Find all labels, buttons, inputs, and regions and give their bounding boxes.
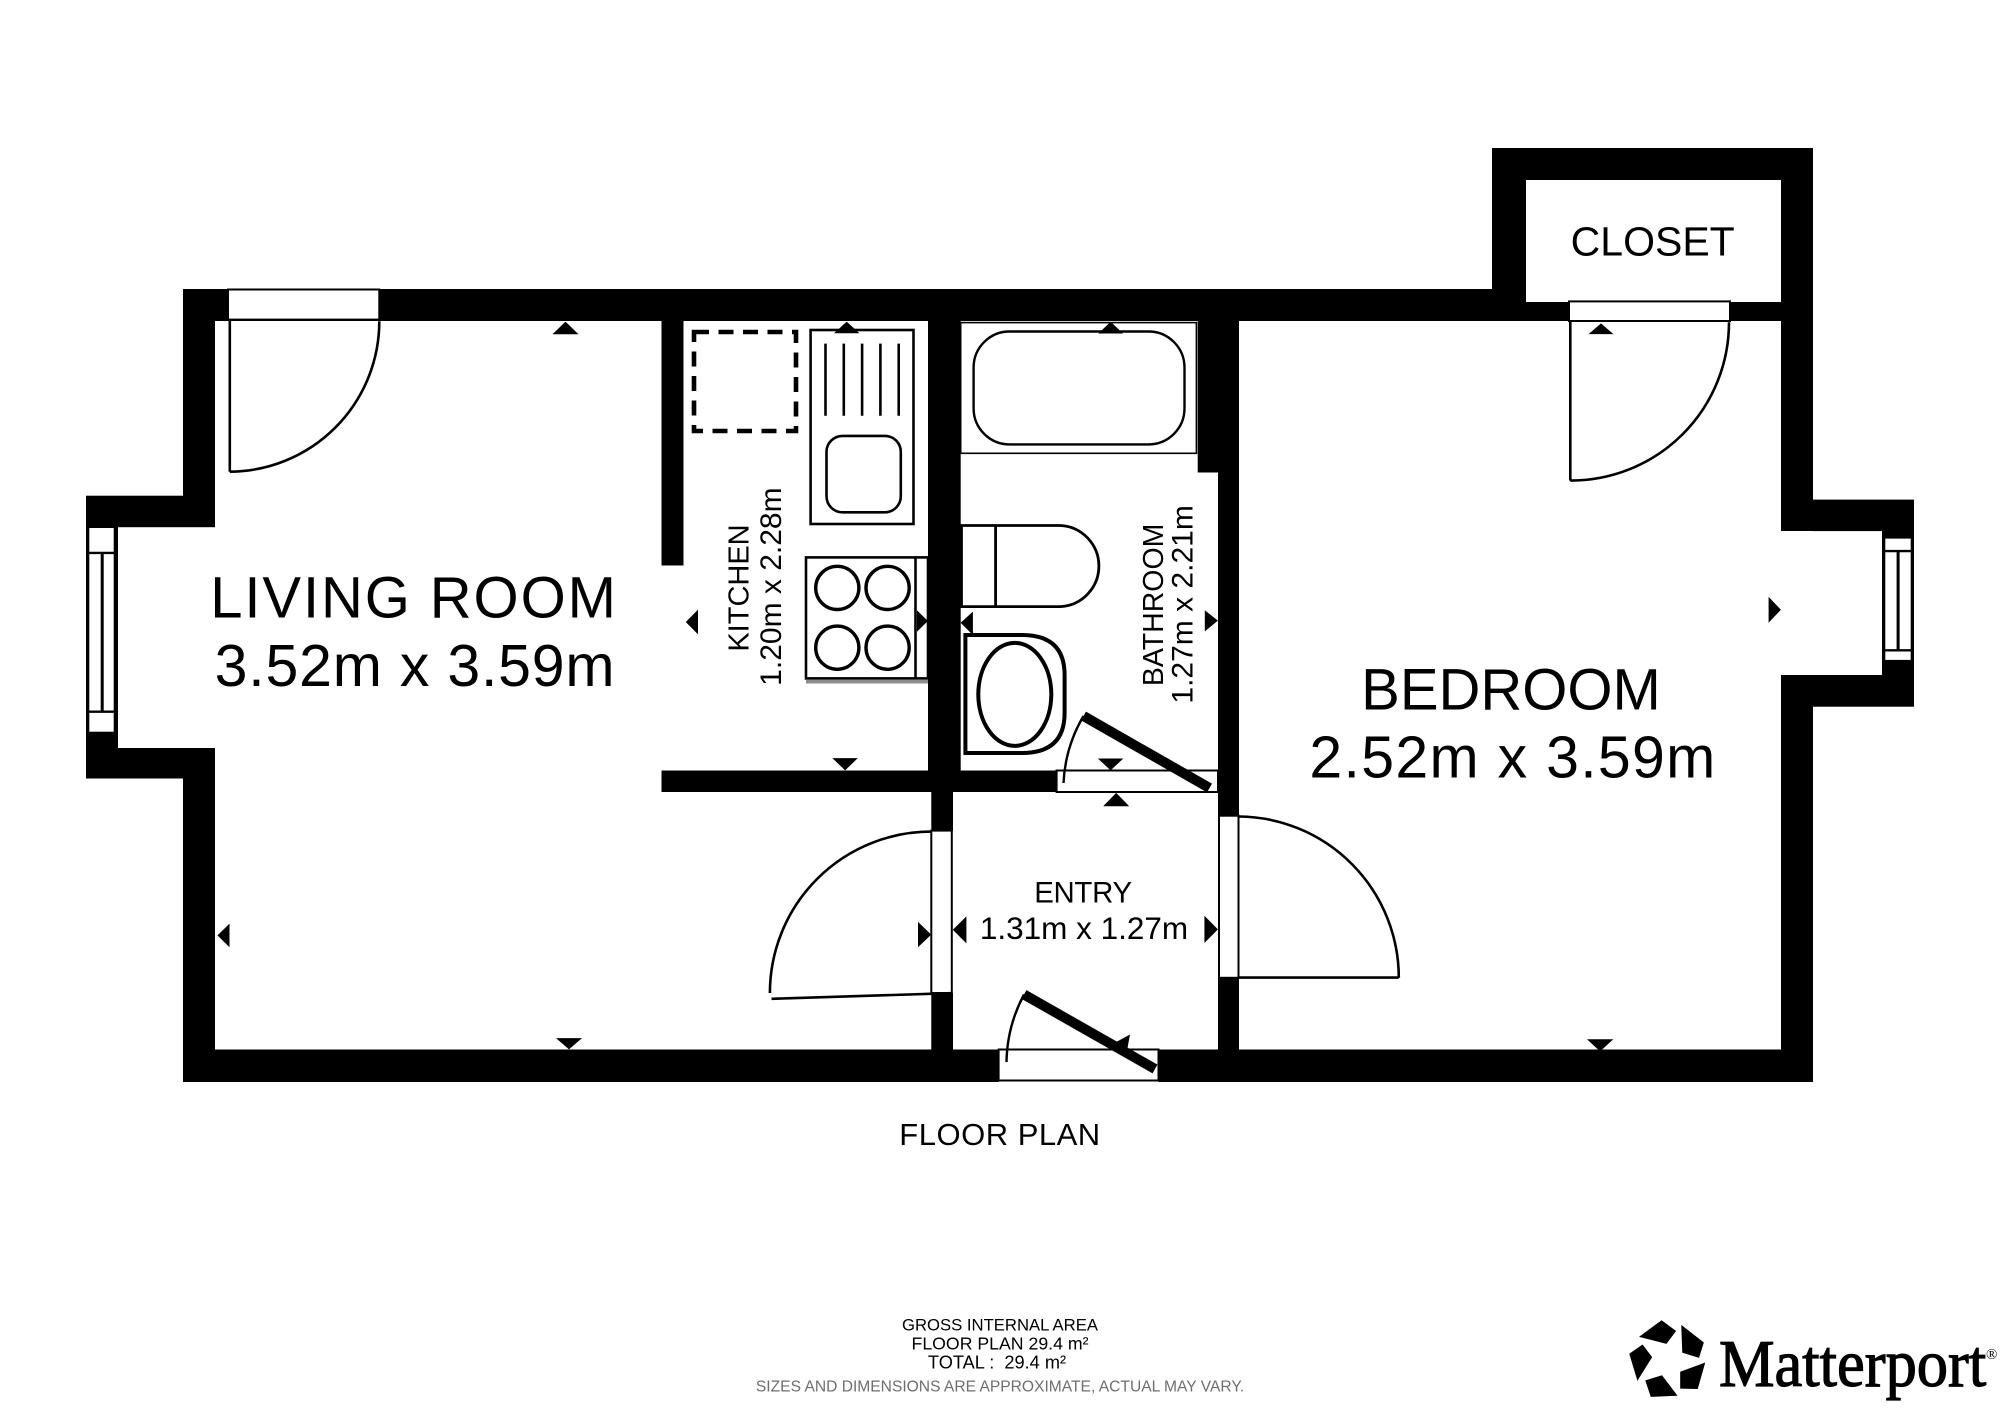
svg-text:FLOOR PLAN: FLOOR PLAN [899,1117,1100,1152]
svg-text:1.31m x 1.27m: 1.31m x 1.27m [980,910,1188,946]
svg-text:CLOSET: CLOSET [1571,218,1735,264]
svg-text:3.52m x 3.59m: 3.52m x 3.59m [215,633,616,699]
svg-text:Matterport: Matterport [1719,1327,1986,1400]
svg-text:FLOOR PLAN 29.4 m²: FLOOR PLAN 29.4 m² [912,1334,1089,1354]
svg-text:BATHROOM: BATHROOM [1138,524,1170,687]
svg-text:BEDROOM: BEDROOM [1361,658,1661,723]
svg-text:1.27m x 2.21m: 1.27m x 2.21m [1167,505,1200,703]
svg-text:1.20m x 2.28m: 1.20m x 2.28m [755,487,788,685]
svg-text:2.52m x 3.59m: 2.52m x 3.59m [1309,724,1716,790]
svg-text:SIZES AND DIMENSIONS ARE APPRO: SIZES AND DIMENSIONS ARE APPROXIMATE, AC… [756,1379,1244,1396]
svg-text:GROSS INTERNAL AREA: GROSS INTERNAL AREA [902,1316,1099,1335]
svg-text:ENTRY: ENTRY [1034,876,1132,909]
svg-text:TOTAL : 29.4 m²: TOTAL : 29.4 m² [928,1353,1066,1373]
svg-text:LIVING ROOM: LIVING ROOM [210,566,618,631]
svg-text:KITCHEN: KITCHEN [724,524,756,651]
svg-text:®: ® [1986,1347,1997,1363]
